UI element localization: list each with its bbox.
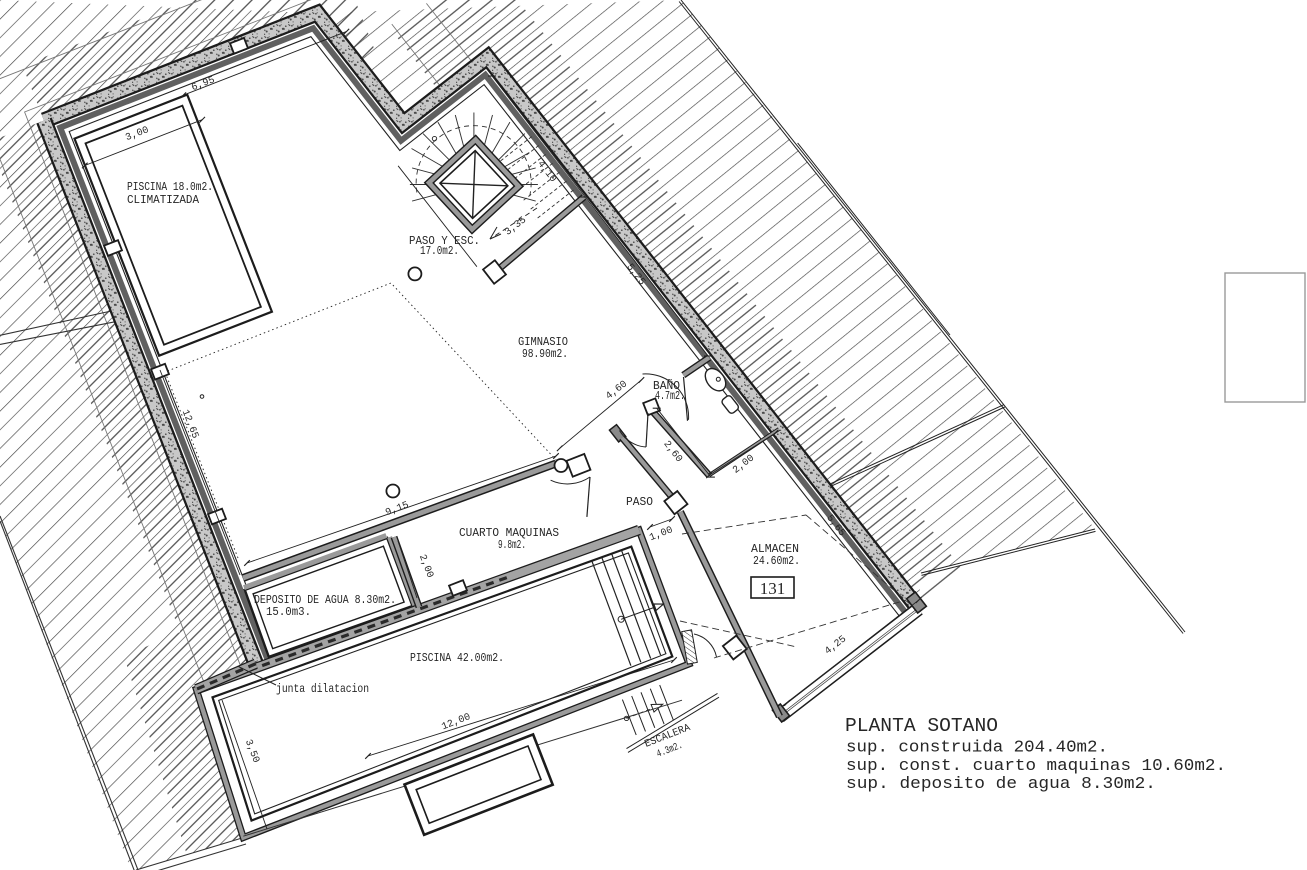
svg-text:24.60m2.: 24.60m2. <box>753 555 800 568</box>
svg-text:131: 131 <box>760 579 786 598</box>
svg-text:sup. construida 204.40m2.: sup. construida 204.40m2. <box>846 739 1108 758</box>
svg-text:sup. const. cuarto maquinas 10: sup. const. cuarto maquinas 10.60m2. <box>846 757 1226 776</box>
svg-text:PASO: PASO <box>626 496 653 509</box>
svg-text:PISCINA 18.0m2.: PISCINA 18.0m2. <box>127 181 213 194</box>
svg-text:4.7m2.: 4.7m2. <box>655 390 685 403</box>
svg-text:CLIMATIZADA: CLIMATIZADA <box>127 194 199 207</box>
svg-text:98.90m2.: 98.90m2. <box>522 348 568 361</box>
svg-text:15.0m3.: 15.0m3. <box>266 606 311 619</box>
svg-text:PLANTA SOTANO: PLANTA SOTANO <box>845 715 998 737</box>
svg-text:PISCINA 42.00m2.: PISCINA 42.00m2. <box>410 652 504 665</box>
svg-text:9.8m2.: 9.8m2. <box>498 539 526 552</box>
svg-text:junta dilatacion: junta dilatacion <box>276 682 369 696</box>
svg-text:sup. deposito de agua 8.30m2.: sup. deposito de agua 8.30m2. <box>846 775 1156 794</box>
svg-text:17.0m2.: 17.0m2. <box>420 245 459 258</box>
